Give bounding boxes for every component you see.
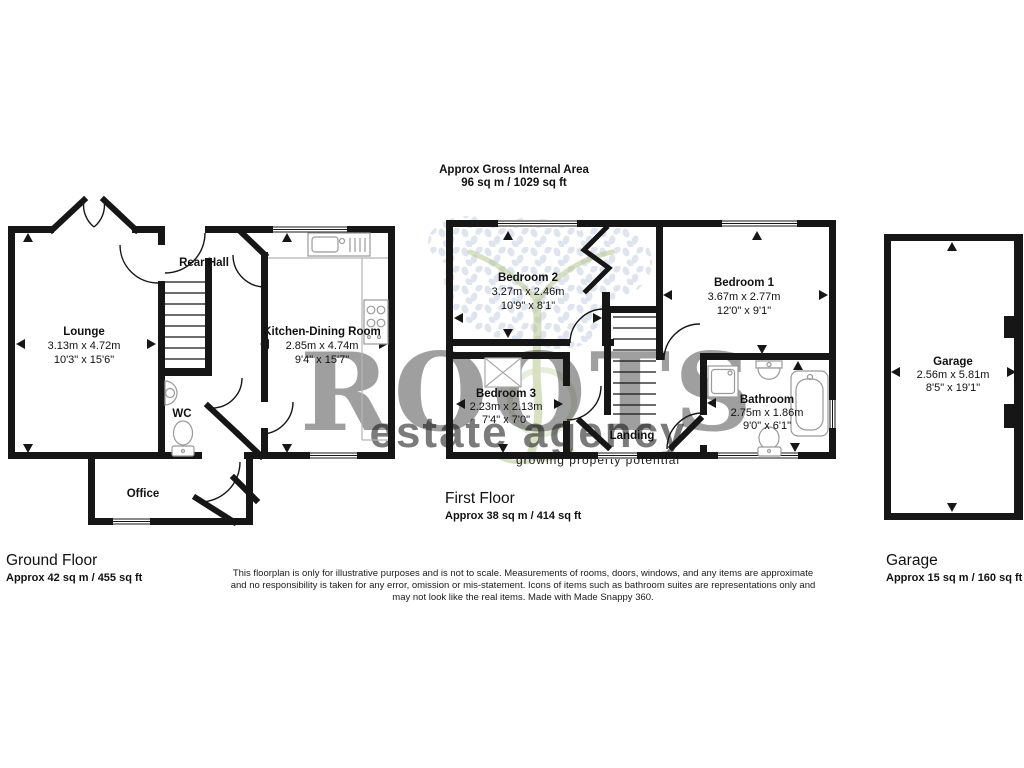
room-label-lounge: Lounge xyxy=(63,326,105,338)
room-label-garage: Garage xyxy=(933,356,973,368)
first-floor-area: Approx 38 sq m / 414 sq ft xyxy=(445,510,582,522)
wall xyxy=(1014,234,1023,520)
room-dim-imperial: 7'4" x 7'0" xyxy=(482,414,530,426)
door-arc xyxy=(94,200,104,227)
room-dim-imperial: 10'3" x 15'6" xyxy=(54,354,114,366)
door-arc xyxy=(233,255,265,287)
room-dim-imperial: 12'0" x 9'1" xyxy=(717,305,771,317)
door-arc xyxy=(120,245,158,283)
loft-hatch-icon xyxy=(485,358,521,387)
door-arc xyxy=(84,200,94,227)
wall xyxy=(700,353,707,415)
arrow-down-icon xyxy=(757,345,767,354)
room-label-bathroom: Bathroom xyxy=(740,394,794,406)
arrow-left-icon xyxy=(891,367,900,377)
room-label-bedroom1: Bedroom 1 xyxy=(714,277,775,289)
disclaimer-line: and no responsibility is taken for any e… xyxy=(231,580,816,591)
wall-pier xyxy=(1004,316,1015,338)
wall-under-stairs xyxy=(158,368,212,376)
room-dim-imperial: 10'9" x 8'1" xyxy=(501,300,555,312)
wall xyxy=(884,513,1023,520)
room-dim-metric: 3.27m x 2.46m xyxy=(492,286,565,298)
room-dim-imperial: 8'5" x 19'1" xyxy=(926,382,980,394)
toilet-icon xyxy=(172,446,194,456)
room-label-bedroom2: Bedroom 2 xyxy=(498,272,558,284)
arrow-down-icon xyxy=(947,503,957,512)
arrow-left-icon xyxy=(663,290,672,300)
room-label-bedroom3: Bedroom 3 xyxy=(476,388,536,400)
disclaimer-line: may not look like the real items. Made w… xyxy=(392,592,653,603)
arrow-down-icon xyxy=(282,444,292,453)
room-label-landing: Landing xyxy=(610,430,655,442)
arrow-down-icon xyxy=(790,443,800,452)
ground-floor-area: Approx 42 sq m / 455 sq ft xyxy=(6,572,143,584)
arrow-up-icon xyxy=(282,233,292,242)
wall xyxy=(700,445,707,459)
toilet-icon xyxy=(758,447,781,456)
diagonal-wall xyxy=(208,406,238,434)
room-label-office: Office xyxy=(127,488,160,500)
sink-icon xyxy=(758,368,780,379)
arrow-right-icon xyxy=(819,290,828,300)
wall xyxy=(602,292,610,346)
room-dim-metric: 2.85m x 4.74m xyxy=(286,340,359,352)
wall xyxy=(604,306,656,313)
arrow-up-icon xyxy=(752,231,762,240)
wall xyxy=(446,339,570,346)
wall xyxy=(563,421,570,452)
diagonal-wall xyxy=(240,231,265,255)
wall xyxy=(8,226,54,233)
disclaimer-line: This floorplan is only for illustrative … xyxy=(233,568,813,579)
room-dim-metric: 3.13m x 4.72m xyxy=(48,340,121,352)
first-floor-title: First Floor xyxy=(445,490,515,507)
room-label-wc: WC xyxy=(172,408,191,420)
toilet-icon xyxy=(174,421,193,445)
bay-wall xyxy=(52,200,84,230)
floorplan-page: ROOTS estate agency growing property pot… xyxy=(0,0,1024,768)
wall-pier xyxy=(1004,404,1015,428)
arrow-up-icon xyxy=(23,233,33,242)
wall xyxy=(388,226,395,459)
wall xyxy=(88,452,95,525)
wall xyxy=(656,227,663,360)
arrow-left-icon xyxy=(16,339,25,349)
room-dim-metric: 2.75m x 1.86m xyxy=(731,407,804,419)
arrow-down-icon xyxy=(23,444,33,453)
door-arc xyxy=(200,462,240,502)
arrow-up-icon xyxy=(947,242,957,251)
wall xyxy=(563,352,570,386)
wall xyxy=(205,258,212,376)
room-dim-metric: 2.23m x 2.13m xyxy=(470,401,543,413)
room-dim-imperial: 9'4" x 15'7" xyxy=(295,354,349,366)
garage-area: Approx 15 sq m / 160 sq ft xyxy=(886,572,1023,584)
bay-wall xyxy=(104,200,136,230)
arrow-up-icon xyxy=(793,361,803,370)
garage-title: Garage xyxy=(886,552,938,569)
wc-basin-icon xyxy=(165,381,177,405)
wall xyxy=(884,234,1023,241)
door-arc xyxy=(212,378,242,408)
arrow-right-icon xyxy=(147,339,156,349)
wall xyxy=(158,281,165,452)
wall xyxy=(656,353,664,360)
wall xyxy=(8,226,15,459)
wall xyxy=(884,234,891,520)
wall xyxy=(158,226,165,245)
room-dim-imperial: 9'0" x 6'1" xyxy=(743,420,791,432)
room-dim-metric: 3.67m x 2.77m xyxy=(708,291,781,303)
ground-floor-title: Ground Floor xyxy=(6,552,97,569)
room-dim-metric: 2.56m x 5.81m xyxy=(917,369,990,381)
page-title: Approx Gross Internal Area xyxy=(439,164,589,176)
stairs-ground-floor xyxy=(165,282,205,359)
wall xyxy=(700,353,836,360)
room-label-rear-hall: Rear Hall xyxy=(179,257,229,269)
floorplan-drawing: ROOTS estate agency growing property pot… xyxy=(0,0,1024,768)
room-label-kitchen: Kitchen-Dining Room xyxy=(263,326,381,338)
page-title-area: 96 sq m / 1029 sq ft xyxy=(461,177,567,189)
